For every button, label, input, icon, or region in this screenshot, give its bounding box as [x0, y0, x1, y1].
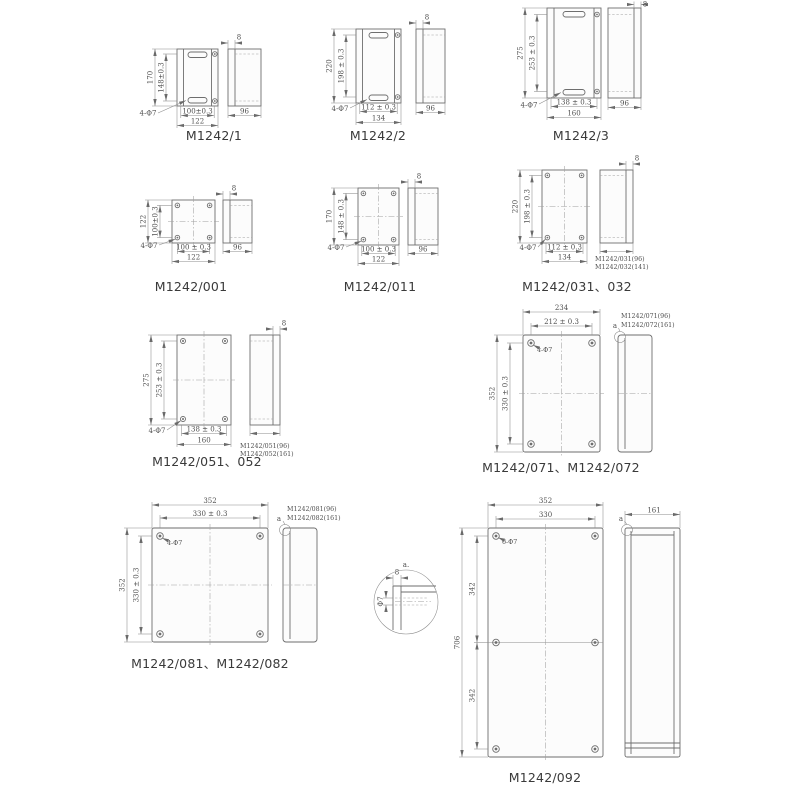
hole-callout: 4-Φ7 — [519, 244, 536, 252]
dim-inner-height: 330 ± 0.3 — [133, 568, 141, 603]
dim-width: 160 — [197, 437, 210, 445]
variant-label: M1242/051(96) — [240, 443, 290, 450]
dim-inner-width: 112 ± 0.3 — [547, 244, 582, 252]
dim-height: 275 — [517, 46, 525, 59]
variant-label: M1242/072(161) — [621, 322, 675, 329]
detail-view-a: a. 8 Φ7 — [374, 561, 438, 634]
drawing-m1242-011: 170 148 ± 0.3 100 ± 0.3 122 4-Φ7 8 96 M1… — [326, 173, 439, 295]
dim-width: 122 — [187, 254, 200, 262]
variant-label: M1242/032(141) — [595, 264, 649, 271]
dim-height: 275 — [143, 373, 151, 386]
dim-inner-height: 198 ± 0.3 — [338, 49, 346, 84]
dim-inner-width: 100±0.3 — [182, 108, 212, 116]
drawing-m1242-051-052: 275 253 ± 0.3 138 ± 0.3 160 4-Φ7 8 M1242… — [143, 320, 294, 470]
cad-canvas: 170 148±0.3 100±0.3 122 4-Φ7 8 96 M1242/… — [0, 0, 800, 800]
drawing-m1242-071-072: 234 212 ± 0.3 352 330 ± 0.3 4-Φ7 a M1242… — [482, 304, 674, 475]
drawing-title: M1242/011 — [344, 279, 416, 294]
drawing-m1242-081-082: 352 330 ± 0.3 352 330 ± 0.3 4-Φ7 a M1242… — [119, 497, 341, 671]
dim-inner-height: 148 ± 0.3 — [338, 199, 346, 234]
drawing-m1242-092: 352 330 706 342 342 6-Φ7 a 161 M1242/092 — [454, 497, 681, 785]
dim-lid: 8 — [417, 173, 421, 181]
dim-lid: 8 — [237, 34, 241, 42]
dim-inner-height: 198 ± 0.3 — [524, 189, 532, 224]
drawing-m1242-001: 122 100±0.3 100 ± 0.3 122 4-Φ7 8 96 M124… — [140, 185, 253, 295]
dim-segment-bottom: 342 — [469, 689, 477, 702]
dim-inner-width: 100 ± 0.3 — [176, 244, 211, 252]
hole-callout: 4-Φ7 — [327, 244, 344, 252]
dim-height: 220 — [512, 200, 520, 213]
dim-inner-width: 212 ± 0.3 — [544, 318, 579, 326]
drawing-title: M1242/001 — [155, 279, 227, 294]
dim-inner-height: 100±0.3 — [152, 206, 160, 236]
dim-depth: 96 — [419, 246, 428, 254]
detail-marker: a — [613, 322, 617, 330]
detail-marker: a — [619, 515, 623, 523]
variant-label: M1242/082(161) — [287, 515, 341, 522]
dim-width: 134 — [558, 254, 572, 262]
variant-label: M1242/071(96) — [621, 313, 671, 320]
dim-width: 352 — [539, 497, 552, 505]
drawing-sheet: 170 148±0.3 100±0.3 122 4-Φ7 8 96 M1242/… — [0, 0, 800, 800]
dim-depth: 96 — [426, 105, 435, 113]
dim-width: 134 — [372, 115, 386, 123]
hole-callout: 4-Φ7 — [331, 105, 348, 113]
drawing-m1242-2: 220 198 ± 0.3 112 ± 0.3 134 4-Φ7 8 96 M1… — [326, 14, 446, 144]
drawing-title: M1242/092 — [509, 770, 581, 785]
dim-height: 122 — [140, 215, 148, 228]
dim-lid: 8 — [425, 14, 429, 22]
detail-marker: a — [277, 515, 281, 523]
dim-depth: 96 — [240, 108, 249, 116]
dim-width: 234 — [555, 304, 569, 312]
dim-depth: 96 — [233, 244, 242, 252]
dim-height: 352 — [119, 578, 127, 591]
drawing-m1242-3: 275 253 ± 0.3 138 ± 0.3 160 4-Φ7 8 96 M1… — [517, 1, 648, 144]
dim-height: 170 — [147, 71, 155, 84]
dim-inner-height: 148±0.3 — [158, 62, 166, 92]
dim-depth: 96 — [620, 100, 629, 108]
dim-width: 352 — [203, 497, 216, 505]
variant-label: M1242/031(96) — [595, 256, 645, 263]
dim-inner-width: 112 ± 0.3 — [361, 104, 396, 112]
dim-depth: 161 — [647, 507, 660, 515]
dim-hole: Φ7 — [377, 596, 385, 606]
variant-label: M1242/081(96) — [287, 506, 337, 513]
drawing-m1242-031-032: 220 198 ± 0.3 112 ± 0.3 134 4-Φ7 8 M1242… — [512, 155, 649, 295]
drawing-title: M1242/031、032 — [522, 279, 632, 294]
drawing-title: M1242/1 — [186, 128, 242, 143]
drawing-title: M1242/3 — [553, 128, 609, 143]
dim-height: 220 — [326, 59, 334, 72]
hole-callout: 4-Φ7 — [148, 427, 165, 435]
drawing-title: M1242/081、M1242/082 — [131, 656, 289, 671]
drawing-m1242-1: 170 148±0.3 100±0.3 122 4-Φ7 8 96 M1242/… — [139, 34, 261, 144]
dim-inner-height: 253 ± 0.3 — [156, 363, 164, 398]
dim-width: 122 — [372, 256, 385, 264]
dim-lid: 8 — [232, 185, 236, 193]
dim-lid: 8 — [635, 155, 639, 163]
dim-inner-width: 138 ± 0.3 — [187, 426, 222, 434]
hole-callout: 4-Φ7 — [140, 242, 157, 250]
dim-inner-height: 330 ± 0.3 — [502, 376, 510, 411]
dim-lid: 8 — [643, 1, 647, 9]
drawing-title: M1242/071、M1242/072 — [482, 460, 640, 475]
dim-inner-width: 330 ± 0.3 — [193, 510, 228, 518]
detail-label: a. — [403, 561, 409, 569]
dim-height: 170 — [326, 210, 334, 223]
drawing-title: M1242/2 — [350, 128, 406, 143]
drawing-title: M1242/051、052 — [152, 454, 262, 469]
dim-segment-top: 342 — [469, 582, 477, 595]
hole-callout: 4-Φ7 — [139, 110, 156, 118]
dim-inner-width: 100 ± 0.3 — [361, 246, 396, 254]
hole-callout: 4-Φ7 — [520, 102, 537, 110]
dim-height: 352 — [489, 387, 497, 400]
dim-width: 122 — [191, 118, 204, 126]
dim-width: 160 — [567, 110, 580, 118]
dim-lip: 8 — [395, 569, 399, 577]
dim-inner-width: 330 — [539, 511, 552, 519]
dim-lid: 8 — [282, 320, 286, 328]
dim-height: 706 — [454, 635, 462, 649]
dim-inner-width: 138 ± 0.3 — [557, 99, 592, 107]
dim-inner-height: 253 ± 0.3 — [529, 36, 537, 71]
